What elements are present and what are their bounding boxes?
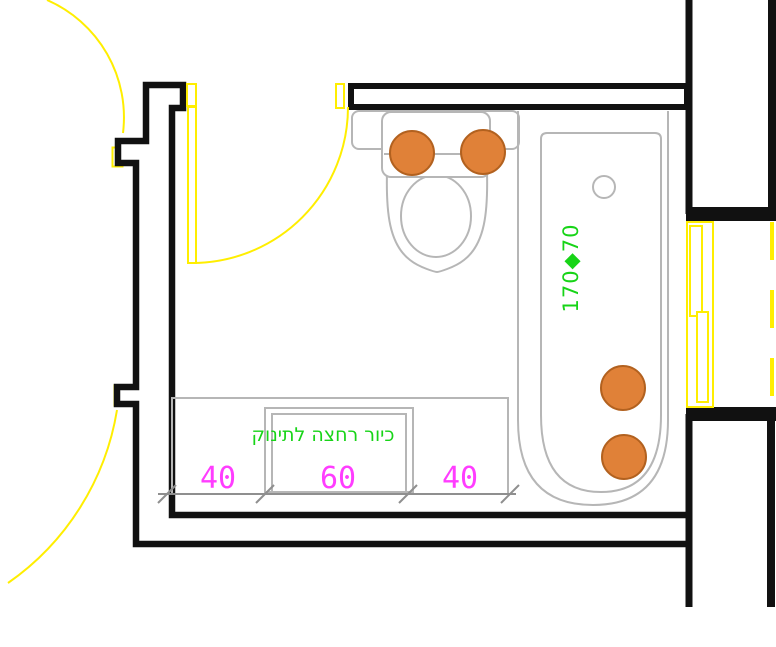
top-wall <box>351 86 687 107</box>
door-swing-arc <box>192 107 348 263</box>
dim-label-center: 60 <box>320 461 356 496</box>
marker-toilet-left[interactable] <box>390 131 434 175</box>
floor-plan-page: כיור רחצה לתינוק 40 60 40 170◆70 <box>0 0 776 647</box>
door-leaf <box>188 107 196 263</box>
window-sash-top <box>690 226 702 316</box>
floor-plan-svg: כיור רחצה לתינוק 40 60 40 170◆70 <box>0 0 776 647</box>
door-jamb-right <box>336 84 344 108</box>
bathtub: 170◆70 <box>518 111 668 505</box>
sink-label: כיור רחצה לתינוק <box>252 424 395 446</box>
neighbor-door-swing-lower <box>8 410 117 583</box>
neighbor-doors <box>8 0 125 583</box>
dimensions: 40 60 40 <box>158 461 519 503</box>
dim-label-right: 40 <box>442 461 478 496</box>
bathtub-drain <box>593 176 615 198</box>
toilet-bowl-inner <box>401 175 471 257</box>
marker-tub-lower[interactable] <box>602 435 646 479</box>
bathtub-size-label: 170◆70 <box>559 224 583 313</box>
partition-bar-lower <box>686 407 776 421</box>
walls <box>117 0 776 607</box>
dim-label-left: 40 <box>200 461 236 496</box>
window <box>687 222 772 408</box>
marker-tub-upper[interactable] <box>601 366 645 410</box>
bathroom-door <box>187 84 348 263</box>
neighbor-door-swing-upper <box>47 0 124 133</box>
marker-toilet-right[interactable] <box>461 130 505 174</box>
partition-bar-upper <box>686 207 776 221</box>
window-sash-bottom <box>697 312 708 402</box>
door-jamb-left <box>187 84 196 106</box>
